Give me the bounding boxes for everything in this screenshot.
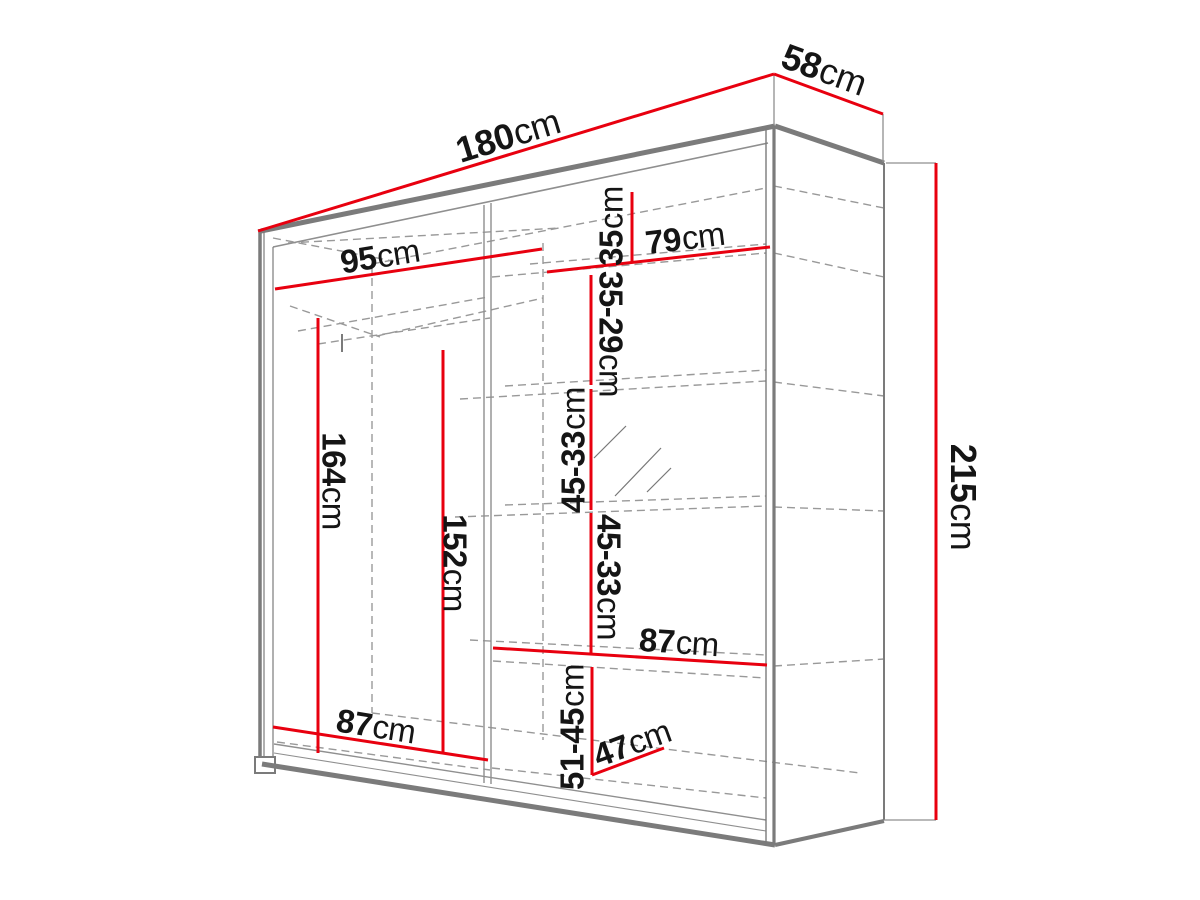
hidden-edges [273, 186, 884, 798]
dim-line-middle-shelf-width [493, 648, 767, 665]
dim-line-width [258, 74, 774, 231]
wardrobe-dimension-diagram: 180cm 58cm 215cm 95cm 79cm 35cm 35-29cm … [0, 0, 1200, 900]
extension-lines [774, 75, 936, 820]
dimension-lines [258, 74, 936, 820]
dim-line-right-section-width [547, 247, 770, 272]
wardrobe-drawing [0, 0, 1200, 900]
dim-line-bottom-depth [592, 748, 664, 775]
dim-line-depth [774, 74, 883, 114]
mirror-hatch-icon [594, 426, 671, 496]
dim-line-left-section-width [275, 249, 542, 289]
